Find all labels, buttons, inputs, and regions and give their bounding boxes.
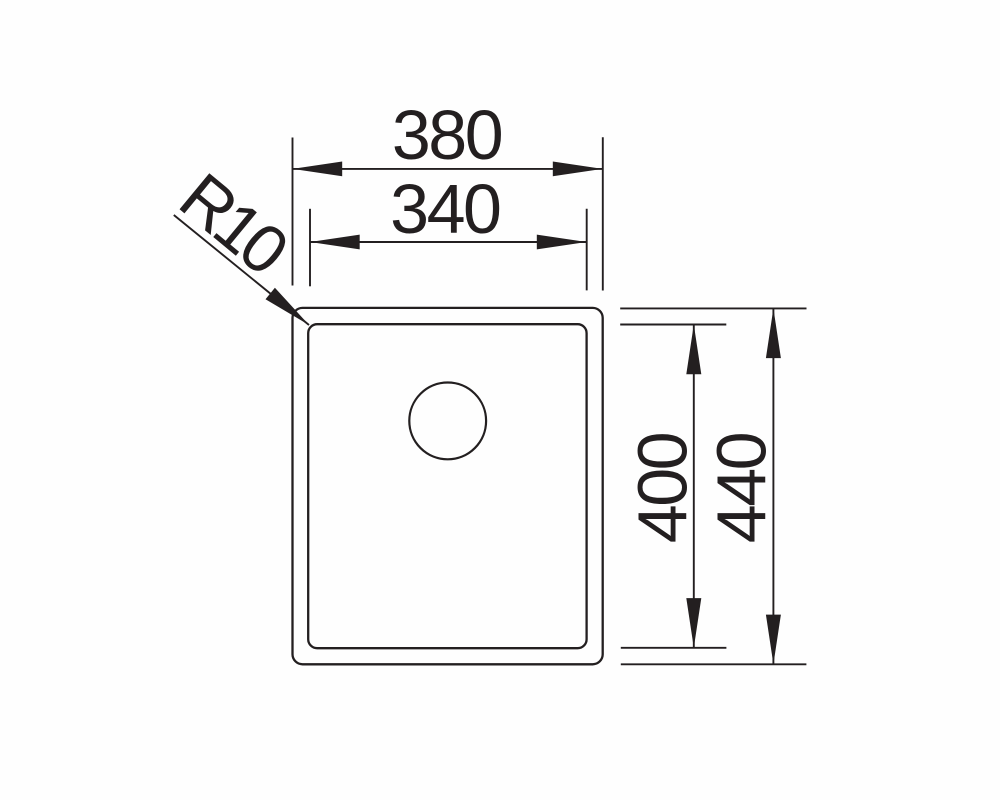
svg-text:400: 400 — [623, 433, 701, 543]
svg-text:340: 340 — [390, 170, 500, 248]
svg-text:440: 440 — [703, 433, 781, 543]
svg-text:380: 380 — [392, 96, 502, 174]
